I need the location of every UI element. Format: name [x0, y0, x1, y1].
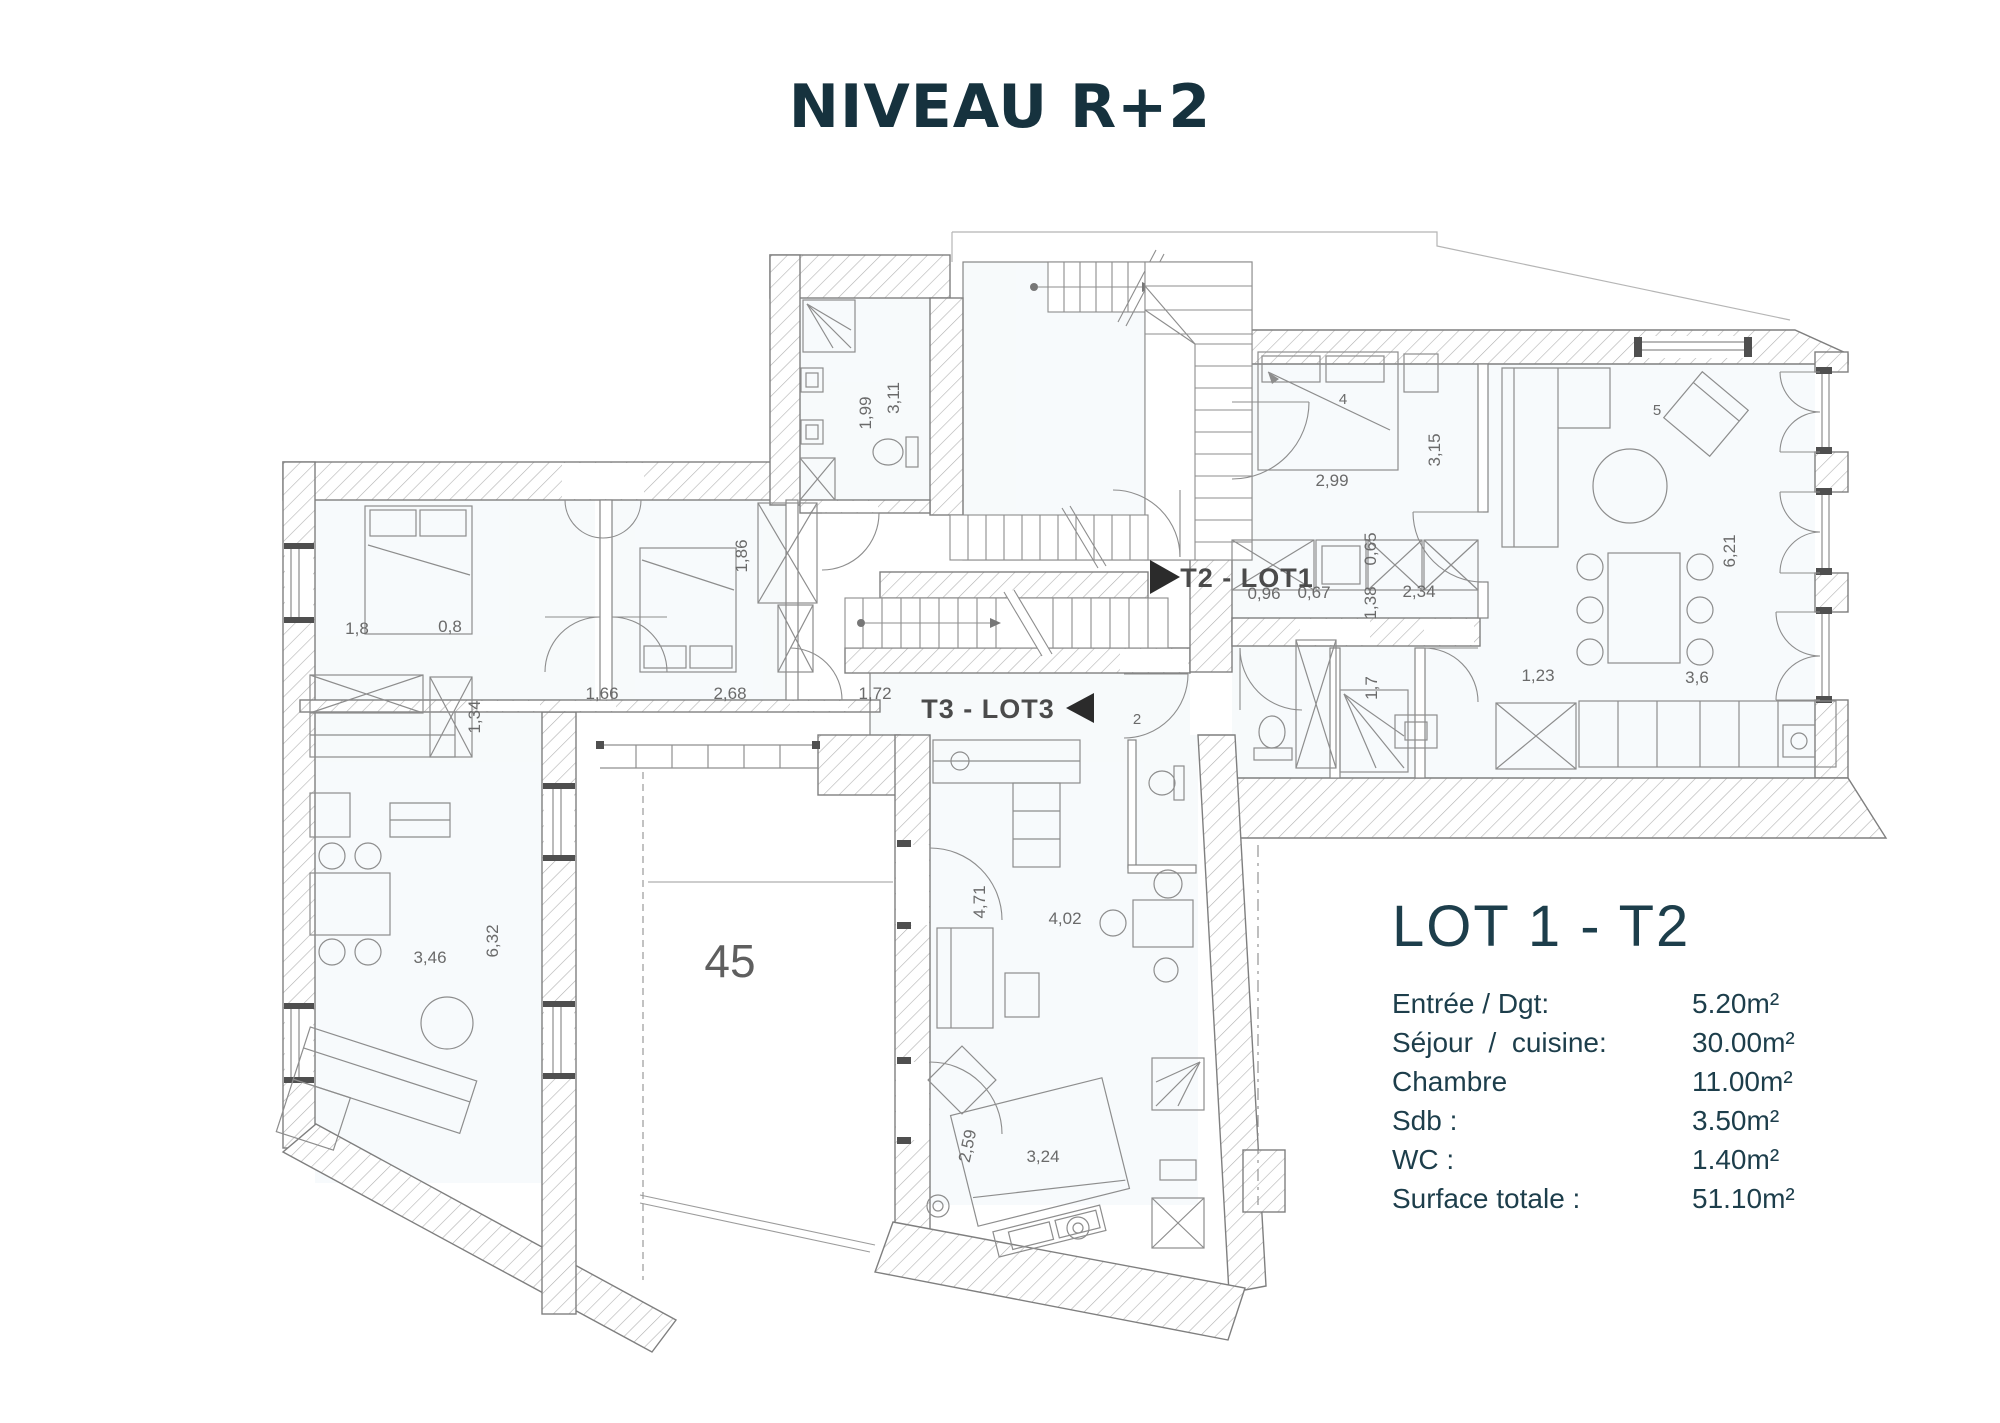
- dim-label: 6,32: [483, 924, 502, 957]
- lot-row-label: Chambre: [1392, 1062, 1692, 1101]
- dim-label: 1,99: [856, 396, 875, 429]
- stair-hall-flight: [950, 506, 1148, 568]
- dim-label: 2,99: [1315, 471, 1348, 490]
- dim-label: 1,7: [1362, 676, 1381, 700]
- dim-label: 3,6: [1685, 668, 1709, 687]
- stair-main-flight: [845, 590, 1168, 656]
- lot-row-value: 11.00m²: [1692, 1062, 1952, 1101]
- bed-tag: 4: [1339, 391, 1347, 408]
- lot-row-label: WC :: [1392, 1140, 1692, 1179]
- lot-row-label: Surface totale :: [1392, 1179, 1692, 1218]
- lot-row-value: 30.00m²: [1692, 1023, 1952, 1062]
- lot-row-label: Sdb :: [1392, 1101, 1692, 1140]
- lot-row-label: Séjour / cuisine:: [1392, 1023, 1692, 1062]
- lot-row-label: Entrée / Dgt:: [1392, 984, 1692, 1023]
- lot1-entry-arrow-icon: [1150, 560, 1180, 594]
- lot-row-value: 51.10m²: [1692, 1179, 1952, 1218]
- lot-row-value: 1.40m²: [1692, 1140, 1952, 1179]
- lot-summary-panel: LOT 1 - T2 Entrée / Dgt:5.20m² Séjour / …: [1392, 898, 1952, 1218]
- floorplan-page: NIVEAU R+2: [0, 0, 2000, 1423]
- dim-label: 3,24: [1026, 1147, 1059, 1166]
- dim-label: 1,8: [345, 619, 369, 638]
- dim-label: 2,34: [1402, 582, 1435, 601]
- dim-label: 1,72: [858, 684, 891, 703]
- dim-label: 2,68: [713, 684, 746, 703]
- dim-label: 3,11: [884, 382, 903, 414]
- lot-panel-rows: Entrée / Dgt:5.20m² Séjour / cuisine:30.…: [1392, 984, 1952, 1218]
- dim-label: 0,65: [1361, 532, 1380, 565]
- dim-label: 3,15: [1425, 433, 1444, 466]
- dim-label: 3,46: [413, 948, 446, 967]
- dim-label: 0,67: [1297, 583, 1330, 602]
- lot-panel-title: LOT 1 - T2: [1392, 898, 1952, 956]
- dim-label: 1,38: [1361, 586, 1380, 619]
- chair-tag: 5: [1653, 402, 1661, 419]
- dim-label: 0,8: [438, 617, 462, 636]
- dim-label: 6,21: [1720, 534, 1739, 567]
- dim-label: 4,02: [1048, 909, 1081, 928]
- stair-winder: [1145, 262, 1252, 560]
- dim-label: 1,86: [732, 539, 751, 572]
- door-tag: 2: [1133, 711, 1141, 728]
- dim-label: 1,66: [585, 684, 618, 703]
- dim-label: 1,34: [465, 700, 484, 733]
- lot-row-value: 5.20m²: [1692, 984, 1952, 1023]
- dim-label: 0,96: [1247, 584, 1280, 603]
- lot-row-value: 3.50m²: [1692, 1101, 1952, 1140]
- terrace-railing: [596, 741, 820, 768]
- dim-label: 1,23: [1521, 666, 1554, 685]
- room-number-45: 45: [704, 935, 755, 987]
- lot3-label: T3 - LOT3: [921, 694, 1055, 724]
- dim-label: 4,71: [970, 885, 989, 918]
